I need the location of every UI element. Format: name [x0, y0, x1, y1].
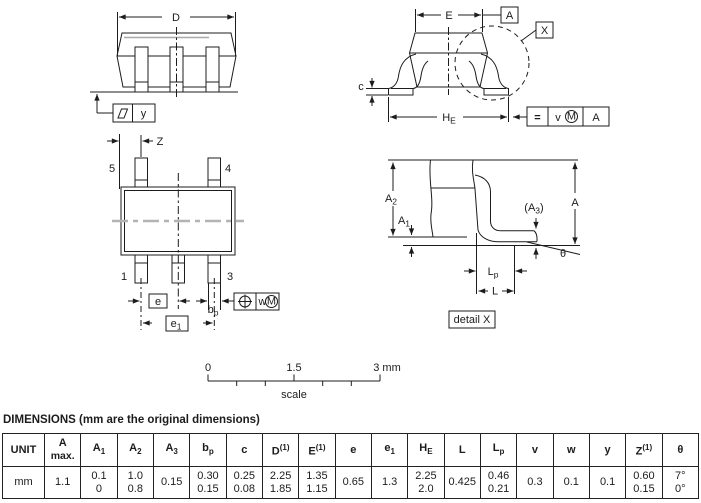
mmc-m2-label: M — [267, 296, 276, 308]
scale-tick-end: 3 mm — [373, 362, 401, 374]
front-view-drawing: A E c X HE = — [358, 7, 609, 126]
cell-l: 0.425 — [444, 467, 480, 499]
col-header-w: w — [553, 434, 589, 467]
cell-c: 0.250.08 — [226, 467, 262, 499]
col-header-e: e — [335, 434, 371, 467]
cell-d: 2.251.85 — [262, 467, 298, 499]
dim-label-theta: θ — [560, 248, 566, 260]
symmetry-symbol-icon: = — [534, 112, 540, 124]
col-header-c: c — [226, 434, 262, 467]
col-header-z: Z(1) — [626, 434, 662, 467]
pin1-label: 1 — [121, 271, 127, 283]
tolerance-v-label: v — [555, 112, 561, 124]
dim-label-d: D — [172, 12, 180, 24]
scale-bar: 0 1.5 3 mm scale — [205, 362, 401, 401]
dim-label-a1: A1 — [398, 215, 410, 229]
scale-tick-0: 0 — [205, 362, 211, 374]
cell-a1: 0.10 — [81, 467, 117, 499]
col-header-a1: A1 — [81, 434, 117, 467]
detail-x-drawing: A2 A1 (A3) A θ Lp L detail X — [385, 160, 580, 328]
dim-label-lp: Lp — [488, 266, 499, 280]
package-outline-drawing: y D A E c X — [0, 0, 701, 410]
dim-label-a3: (A3) — [524, 202, 543, 216]
dim-label-he: HE — [442, 112, 456, 126]
col-header-theta: θ — [662, 434, 698, 467]
col-header-a3: A3 — [153, 434, 189, 467]
cell-bp: 0.300.15 — [190, 467, 226, 499]
col-header-e-cap: E(1) — [299, 434, 335, 467]
dim-label-a2: A2 — [385, 193, 397, 207]
col-header-v: v — [517, 434, 553, 467]
flatness-datum-label: y — [141, 108, 147, 120]
cell-z: 0.600.15 — [626, 467, 662, 499]
col-header-e1: e1 — [371, 434, 407, 467]
pin5-label: 5 — [109, 163, 115, 175]
mmc-m-label: M — [567, 111, 576, 123]
cell-he: 2.252.0 — [408, 467, 444, 499]
cell-w: 0.1 — [553, 467, 589, 499]
flatness-icon — [118, 109, 128, 118]
scale-label: scale — [281, 389, 307, 401]
cell-unit: mm — [3, 467, 45, 499]
col-header-a-max: Amax. — [45, 434, 81, 467]
cell-a3: 0.15 — [153, 467, 189, 499]
col-header-a2: A2 — [117, 434, 153, 467]
dim-label-a: A — [571, 197, 579, 209]
values-row: mm 1.1 0.10 1.00.8 0.15 0.300.15 0.250.0… — [3, 467, 699, 499]
dim-label-e1: e1 — [171, 318, 182, 332]
dim-label-c: c — [358, 81, 364, 93]
datum-a-label: A — [506, 10, 514, 22]
detail-ref-label: X — [541, 25, 549, 37]
top-view-drawing: Z 5 4 1 3 e bp — [107, 134, 279, 332]
cell-a2: 1.00.8 — [117, 467, 153, 499]
cell-e: 0.65 — [335, 467, 371, 499]
dimensions-heading: DIMENSIONS (mm are the original dimensio… — [3, 414, 260, 426]
col-header-lp: Lp — [480, 434, 516, 467]
dim-label-e: e — [155, 296, 161, 308]
dim-label-bp: bp — [208, 304, 219, 318]
col-header-l: L — [444, 434, 480, 467]
cell-e1: 1.3 — [371, 467, 407, 499]
pin4-label: 4 — [225, 163, 231, 175]
cell-y: 0.1 — [589, 467, 625, 499]
dim-label-z: Z — [157, 136, 164, 148]
side-view-drawing: y D — [90, 12, 238, 122]
dimensions-table: UNIT Amax. A1 A2 A3 bp c D(1) E(1) e e1 … — [2, 433, 699, 499]
header-row: UNIT Amax. A1 A2 A3 bp c D(1) E(1) e e1 … — [3, 434, 699, 467]
package-outline-page: y D A E c X — [0, 0, 701, 503]
cell-v: 0.3 — [517, 467, 553, 499]
scale-tick-mid: 1.5 — [286, 362, 301, 374]
col-header-he: HE — [408, 434, 444, 467]
frame-datum-a-label: A — [592, 112, 600, 124]
dim-label-e-upper: E — [445, 10, 452, 22]
col-header-y: y — [589, 434, 625, 467]
cell-theta: 7°0° — [662, 467, 698, 499]
detail-x-caption: detail X — [454, 314, 491, 326]
dim-label-l: L — [492, 286, 498, 298]
pin3-label: 3 — [227, 271, 233, 283]
cell-lp: 0.460.21 — [480, 467, 516, 499]
position-tolerance-icon — [238, 295, 252, 309]
col-header-d: D(1) — [262, 434, 298, 467]
col-header-unit: UNIT — [3, 434, 45, 467]
col-header-bp: bp — [190, 434, 226, 467]
cell-e-cap: 1.351.15 — [299, 467, 335, 499]
cell-a-max: 1.1 — [45, 467, 81, 499]
